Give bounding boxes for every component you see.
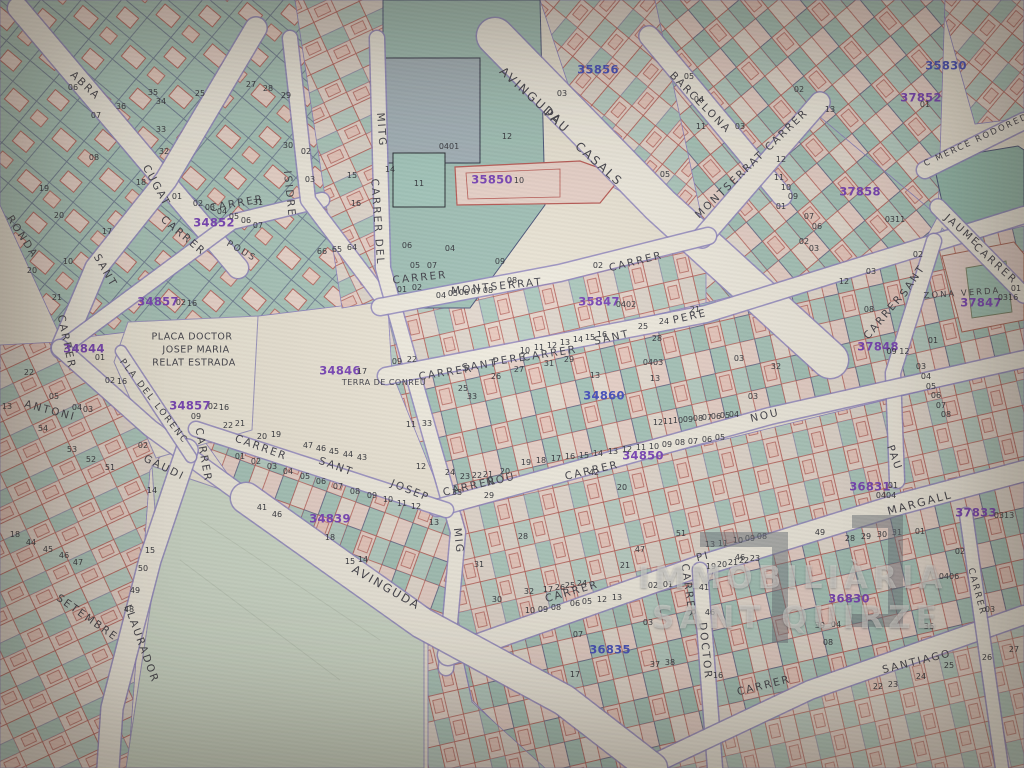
parcel-number: 04 (831, 621, 841, 629)
parcel-number: 44 (26, 539, 36, 547)
parcel-number: 05 (300, 473, 310, 481)
parcel-number: 31 (474, 561, 484, 569)
parcel-number: 09 (788, 193, 798, 201)
parcel-number: 11 (718, 540, 728, 548)
parcel-number: 07 (804, 213, 814, 221)
parcel-number: 26 (982, 654, 992, 662)
parcel-number: 09 (495, 258, 505, 266)
parcel-number: 32 (159, 148, 169, 156)
parcel-number: 05 (448, 290, 458, 298)
street-name-label: CARRER (679, 563, 697, 619)
parcel-number: 22 (24, 369, 34, 377)
parcel-number: 25 (565, 582, 575, 590)
parcel-number: 02 (593, 262, 603, 270)
parcel-number: 01 (776, 203, 786, 211)
parcel-number: 24 (916, 673, 926, 681)
parcel-number: 19 (706, 563, 716, 571)
parcel-number: 01 (663, 581, 673, 589)
parcel-number: 05 (229, 213, 239, 221)
street-name-label: CARRER (736, 674, 792, 698)
parcel-number: 05 (715, 434, 725, 442)
parcel-number: 16 (713, 672, 723, 680)
parcel-number: 17 (543, 586, 553, 594)
parcel-number: 51 (676, 530, 686, 538)
parcel-number: 08 (551, 604, 561, 612)
block-id-label: 35830 (925, 60, 967, 72)
parcel-number: 11 (406, 421, 416, 429)
parcel-number: 27 (246, 81, 256, 89)
parcel-number: 14 (147, 487, 157, 495)
parcel-number: 0316 (998, 294, 1018, 302)
parcel-number: 10 (781, 184, 791, 192)
map-photo: ABRARONDASANTCUGATCARRERCARRERPOUSISIDRE… (0, 0, 1024, 768)
parcel-number: 10 (514, 177, 524, 185)
parcel-number: 33 (467, 393, 477, 401)
parcel-number: 01 (920, 101, 930, 109)
parcel-number: 53 (67, 446, 77, 454)
parcel-number: 15 (579, 452, 589, 460)
parcel-number: 13 (560, 339, 570, 347)
parcel-number: 16 (117, 378, 127, 386)
parcel-number: 08 (675, 439, 685, 447)
parcel-number: 23 (888, 681, 898, 689)
parcel-number: 30 (492, 596, 502, 604)
parcel-number: 02 (193, 200, 203, 208)
parcel-number: 15 (345, 558, 355, 566)
parcel-number: 12 (416, 463, 426, 471)
parcel-number: 09 (745, 535, 755, 543)
parcel-number: 39 (815, 622, 825, 630)
parcel-number: 18 (136, 179, 146, 187)
parcel-number: 24 (445, 469, 455, 477)
parcel-number: 18 (10, 531, 20, 539)
parcel-number: 22 (472, 472, 482, 480)
parcel-number: 11 (663, 418, 673, 426)
parcel-number: 06 (68, 84, 78, 92)
parcel-number: 12 (411, 503, 421, 511)
parcel-number: 30 (877, 531, 887, 539)
parcel-number: 03 (267, 463, 277, 471)
street-name-label: POUS (225, 240, 258, 264)
parcel-number: 03 (748, 393, 758, 401)
parcel-number: 01 (95, 354, 105, 362)
parcel-number: 03 (734, 355, 744, 363)
parcel-number: 16 (187, 300, 197, 308)
parcel-number: 12 (502, 133, 512, 141)
block-id-label: 37847 (960, 297, 1002, 309)
parcel-number: 08 (823, 639, 833, 647)
street-name-label: AVINGUDA (350, 564, 422, 612)
parcel-number: 09 (367, 492, 377, 500)
parcel-number: 07 (91, 112, 101, 120)
parcel-number: 46 (272, 511, 282, 519)
parcel-number: 02 (648, 582, 658, 590)
parcel-number: 10 (383, 496, 393, 504)
parcel-number: 10 (673, 417, 683, 425)
place-label: PLACA DOCTOR (151, 332, 232, 342)
block-id-label: 37833 (955, 507, 997, 519)
parcel-number: 22 (407, 356, 417, 364)
parcel-number: 10 (733, 537, 743, 545)
parcel-number: 37 (650, 661, 660, 669)
street-name-label: MITG (375, 112, 388, 147)
parcel-number: 0313 (994, 512, 1014, 520)
parcel-number: 13 (608, 448, 618, 456)
parcel-number: 04 (436, 292, 446, 300)
parcel-number: 08 (864, 306, 874, 314)
parcel-number: 51 (105, 464, 115, 472)
parcel-number: 0403 (643, 359, 663, 367)
parcel-number: 08 (941, 411, 951, 419)
parcel-number: 25 (638, 323, 648, 331)
parcel-number: 42 (589, 469, 599, 477)
parcel-number: 24 (659, 318, 669, 326)
parcel-number: 05 (660, 171, 670, 179)
street-name-label: PAU (542, 107, 572, 136)
parcel-number: 11 (534, 344, 544, 352)
parcel-number: 20 (500, 468, 510, 476)
parcel-number: 06 (402, 242, 412, 250)
block-id-label: 34839 (309, 513, 351, 525)
parcel-number: 09 (392, 358, 402, 366)
parcel-number: 04 (217, 208, 227, 216)
parcel-number: 02 (105, 377, 115, 385)
parcel-number: 02 (176, 299, 186, 307)
parcel-number: 25 (944, 662, 954, 670)
parcel-number: 30 (283, 142, 293, 150)
parcel-number: 12 (547, 342, 557, 350)
street-name-label: MIG (451, 527, 464, 554)
parcel-number: 49 (130, 587, 140, 595)
street-name-label: MARGALL (886, 489, 954, 517)
parcel-number: 12 (622, 446, 632, 454)
street-name-label: SANT (317, 456, 355, 478)
parcel-number: 26 (491, 373, 501, 381)
parcel-number: 31 (253, 199, 263, 207)
parcel-number: 21 (728, 559, 738, 567)
parcel-number: 27 (514, 366, 524, 374)
parcel-number: 15 (145, 547, 155, 555)
parcel-number: 10 (525, 607, 535, 615)
parcel-number: 32 (771, 363, 781, 371)
parcel-number: 06 (931, 392, 941, 400)
parcel-number: 21 (52, 294, 62, 302)
street-name-label: GAUDI (142, 454, 186, 483)
parcel-number: 47 (303, 442, 313, 450)
parcel-number: 45 (329, 448, 339, 456)
parcel-number: 22 (873, 683, 883, 691)
parcel-number: 13 (650, 375, 660, 383)
parcel-number: 36 (116, 103, 126, 111)
block-id-label: 35856 (577, 64, 619, 76)
parcel-number: 21 (620, 562, 630, 570)
street-name-label: CARRER (862, 293, 905, 342)
block-id-label: 34857 (137, 296, 179, 308)
block-id-label: 35850 (471, 174, 513, 186)
parcel-number: 07 (253, 222, 263, 230)
parcel-number: 14 (385, 166, 395, 174)
parcel-number: 12 (839, 278, 849, 286)
parcel-number: 06 (241, 217, 251, 225)
parcel-number: 06 (316, 478, 326, 486)
parcel-number: 28 (263, 85, 273, 93)
place-label: RELAT ESTRADA (152, 358, 235, 368)
parcel-number: 05 (49, 393, 59, 401)
parcel-number: 36 (924, 623, 934, 631)
place-label: TERRA DE CONREU (342, 379, 426, 387)
parcel-number: 54 (38, 425, 48, 433)
parcel-number: 10 (520, 347, 530, 355)
map-labels: ABRARONDASANTCUGATCARRERCARRERPOUSISIDRE… (0, 0, 1024, 768)
block-id-label: 37858 (839, 186, 881, 198)
parcel-number: 09 (683, 416, 693, 424)
parcel-number: 16 (351, 200, 361, 208)
parcel-number: 21 (235, 420, 245, 428)
parcel-number: 29 (564, 356, 574, 364)
place-label: JOSEP MARIA (162, 345, 229, 355)
parcel-number: 03 (866, 268, 876, 276)
parcel-number: 09 (191, 413, 201, 421)
parcel-number: 04 (72, 404, 82, 412)
parcel-number: 0406 (939, 573, 959, 581)
parcel-number: 32 (524, 588, 534, 596)
parcel-number: 17 (570, 671, 580, 679)
parcel-number: 20 (617, 484, 627, 492)
street-name-label: C MERCE RODOREDA (923, 109, 1024, 168)
parcel-number: 03 (83, 406, 93, 414)
parcel-number: 09 (538, 606, 548, 614)
parcel-number: 06 (702, 436, 712, 444)
parcel-number: 17 (102, 228, 112, 236)
parcel-number: 49 (815, 529, 825, 537)
parcel-number: 52 (86, 456, 96, 464)
parcel-number: 66 (317, 248, 327, 256)
parcel-number: 33 (422, 420, 432, 428)
parcel-number: 01 (915, 528, 925, 536)
parcel-number: 03 (557, 90, 567, 98)
parcel-number: 05 (684, 73, 694, 81)
street-name-label: ISIDRE (281, 170, 296, 218)
parcel-number: 16 (565, 453, 575, 461)
parcel-number: 21 (483, 471, 493, 479)
parcel-number: 02 (794, 86, 804, 94)
parcel-number: 33 (452, 489, 462, 497)
parcel-number: 03 (205, 204, 215, 212)
parcel-number: 0311 (885, 216, 905, 224)
parcel-number: 02 (208, 403, 218, 411)
street-name-label: CARRER (971, 242, 1019, 287)
parcel-number: 16 (219, 404, 229, 412)
parcel-number: 35 (148, 89, 158, 97)
parcel-number: 03 (305, 176, 315, 184)
parcel-number: 02 (955, 548, 965, 556)
parcel-number: 01 (172, 193, 182, 201)
parcel-number: 45 (43, 546, 53, 554)
parcel-number: 05 (410, 262, 420, 270)
parcel-number: 24 (577, 580, 587, 588)
block-id-label: 34860 (583, 390, 625, 402)
parcel-number: 02 (412, 284, 422, 292)
parcel-number: 10 (649, 443, 659, 451)
parcel-number: 14 (593, 450, 603, 458)
parcel-number: 04 (729, 411, 739, 419)
parcel-number: 46 (59, 552, 69, 560)
parcel-number: 07 (471, 288, 481, 296)
parcel-number: 01 (888, 482, 898, 490)
parcel-number: 11 (414, 180, 424, 188)
parcel-number: 09 12 (887, 348, 910, 356)
parcel-number: 13 (429, 519, 439, 527)
parcel-number: 02 (138, 442, 148, 450)
parcel-number: 19 (521, 459, 531, 467)
street-name-label: SETEMBRE (54, 593, 119, 643)
street-name-label: DOCTOR (697, 622, 713, 680)
parcel-number: 04 (283, 468, 293, 476)
parcel-number: 65 (332, 246, 342, 254)
map-viewport[interactable]: ABRARONDASANTCUGATCARRERCARRERPOUSISIDRE… (0, 0, 1024, 768)
parcel-number: 27 (1009, 646, 1019, 654)
parcel-number: 13 (590, 372, 600, 380)
parcel-number: 03 (916, 363, 926, 371)
parcel-number: 34 (156, 98, 166, 106)
parcel-number: 07 (427, 262, 437, 270)
parcel-number: 03 (735, 123, 745, 131)
street-name-label: SANT (91, 253, 118, 290)
parcel-number: 13 (825, 106, 835, 114)
parcel-number: 11 (774, 174, 784, 182)
street-name-label: CASALS (573, 140, 625, 188)
parcel-number: 14 (358, 556, 368, 564)
parcel-number: 31 (544, 360, 554, 368)
parcel-number: 20 (27, 267, 37, 275)
parcel-number: 0402 (616, 301, 636, 309)
parcel-number: 17 (551, 455, 561, 463)
parcel-number: 21 (690, 306, 700, 314)
parcel-number: 22 (223, 422, 233, 430)
parcel-number: 06 (812, 223, 822, 231)
parcel-number: 11 (636, 444, 646, 452)
street-name-label: CARRER (193, 427, 213, 483)
street-name-label: PAU (885, 444, 904, 473)
parcel-number: 15 (347, 172, 357, 180)
parcel-number: 01 (1011, 285, 1021, 293)
parcel-number: 06 (459, 289, 469, 297)
parcel-number: 02 (799, 238, 809, 246)
parcel-number: 11 (397, 500, 407, 508)
parcel-number: 47 (635, 546, 645, 554)
parcel-number: 02 (251, 458, 261, 466)
parcel-number: 13 (612, 594, 622, 602)
parcel-number: 28 (518, 533, 528, 541)
parcel-number: 0404 (876, 492, 896, 500)
parcel-number: 12 (653, 419, 663, 427)
parcel-number: 28 (652, 335, 662, 343)
parcel-number: 50 (138, 565, 148, 573)
parcel-number: 31 (892, 529, 902, 537)
block-id-label: 35847 (578, 296, 620, 308)
street-name-label: CARRER (608, 250, 664, 274)
parcel-number: 48 (124, 606, 134, 614)
parcel-number: 11 (696, 123, 706, 131)
parcel-number: 01 (397, 286, 407, 294)
parcel-number: 07 (333, 483, 343, 491)
street-name-label: NOU (749, 408, 780, 425)
parcel-number: 03 (643, 619, 653, 627)
parcel-number: 28 (845, 535, 855, 543)
parcel-number: 38 (665, 659, 675, 667)
parcel-number: 46 (316, 445, 326, 453)
parcel-number: 64 (347, 244, 357, 252)
parcel-number: 15 (585, 334, 595, 342)
block-id-label: 36830 (828, 593, 870, 605)
parcel-number: 25 (195, 90, 205, 98)
parcel-number: 12 (597, 596, 607, 604)
parcel-number: 01 (235, 453, 245, 461)
parcel-number: 02 (913, 251, 923, 259)
parcel-number: 03 (985, 606, 995, 614)
parcel-number: 06 (570, 600, 580, 608)
parcel-number: 09 (662, 441, 672, 449)
parcel-number: 04 (694, 96, 704, 104)
parcel-number: 46 (705, 609, 715, 617)
parcel-number: 16 (597, 331, 607, 339)
block-id-label: 36835 (589, 644, 631, 656)
parcel-number: 23 (460, 473, 470, 481)
parcel-number: 29 (861, 533, 871, 541)
street-name-label: CARRER DEL (369, 178, 386, 265)
parcel-number: 07 (936, 402, 946, 410)
parcel-number: 08 (350, 488, 360, 496)
parcel-number: 43 (357, 454, 367, 462)
street-name-label: RONDA (4, 214, 39, 260)
parcel-number: 10 (63, 258, 73, 266)
parcel-number: 41 (257, 504, 267, 512)
block-id-label: 34846 (319, 365, 361, 377)
parcel-number: 08 (757, 533, 767, 541)
parcel-number: 08 (507, 277, 517, 285)
parcel-number: 29 (484, 492, 494, 500)
parcel-number: 26 (555, 584, 565, 592)
parcel-number: 44 (343, 451, 353, 459)
parcel-number: 14 (573, 336, 583, 344)
parcel-number: 08 (89, 154, 99, 162)
street-name-label: MONTSERRAT CARRER (694, 107, 811, 220)
parcel-number: 04 (445, 245, 455, 253)
parcel-number: 05 (926, 383, 936, 391)
parcel-number: 47 (73, 559, 83, 567)
parcel-number: 33 (156, 126, 166, 134)
parcel-number: 20 (257, 433, 267, 441)
parcel-number: 20 (54, 212, 64, 220)
parcel-number: 13 (705, 541, 715, 549)
parcel-number: 20 (717, 561, 727, 569)
parcel-number: 02 (301, 148, 311, 156)
parcel-number: 12 (776, 156, 786, 164)
parcel-number: 01 (928, 337, 938, 345)
parcel-number: 08 (483, 287, 493, 295)
parcel-number: 07 (688, 438, 698, 446)
street-name-label: CARRER (965, 567, 986, 617)
parcel-number: 03 (809, 245, 819, 253)
parcel-number: 17 (357, 368, 367, 376)
parcel-number: 19 (39, 185, 49, 193)
parcel-number: 0401 (439, 143, 459, 151)
parcel-number: 07 (573, 631, 583, 639)
parcel-number: 19 (271, 431, 281, 439)
parcel-number: 41 (699, 584, 709, 592)
street-name-label: JOSEP (389, 478, 431, 503)
parcel-number: 29 (281, 92, 291, 100)
